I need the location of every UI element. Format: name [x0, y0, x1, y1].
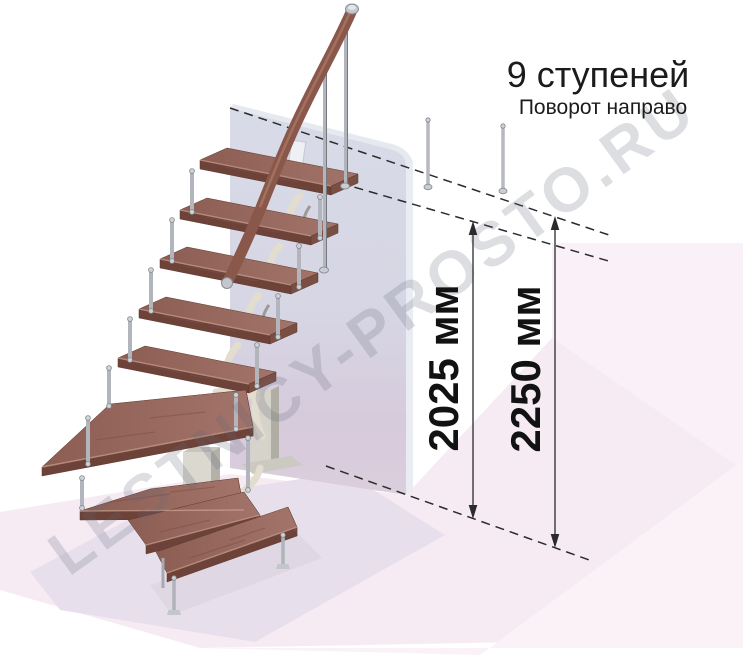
- handrail-end-cap: [222, 278, 233, 289]
- page-subtitle: Поворот направо: [519, 96, 687, 119]
- dimension-label-2025: 2025 мм: [420, 284, 467, 451]
- staircase-diagram-page: LESTNICY-PROSTO.RU 2025 мм 2250 мм 9 сту…: [0, 0, 743, 655]
- page-title: 9 ступеней: [507, 54, 689, 95]
- staircase-illustration: LESTNICY-PROSTO.RU 2025 мм 2250 мм 9 сту…: [0, 0, 743, 655]
- dimension-label-2250: 2250 мм: [502, 285, 549, 452]
